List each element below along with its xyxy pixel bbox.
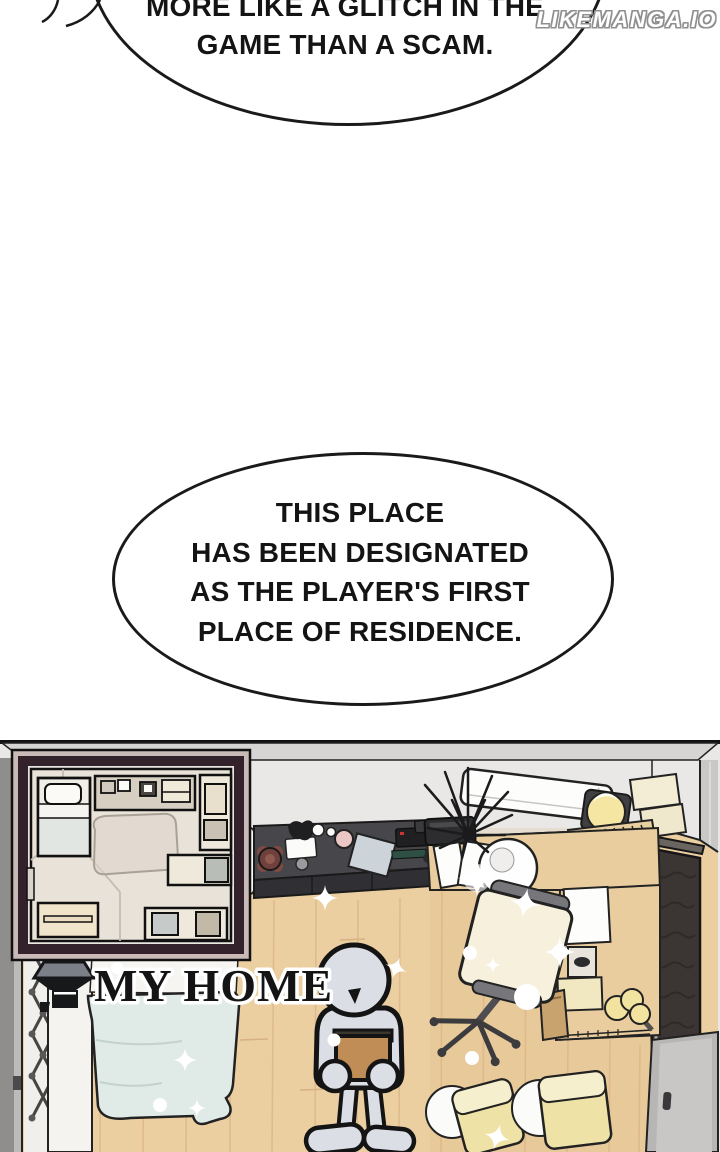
bubble-line: THIS PLACE	[112, 493, 608, 533]
home-label-text: MY HOME	[94, 960, 333, 1011]
bubble-line: PLACE OF RESIDENCE.	[112, 612, 608, 652]
book	[285, 837, 317, 860]
bubble-line: GAME THAN A SCAM.	[90, 26, 600, 64]
character-hand	[368, 1061, 398, 1091]
bubble-line: HAS BEEN DESIGNATED	[112, 533, 608, 573]
bubble-line: MORE LIKE A GLITCH IN THE	[90, 0, 600, 26]
site-watermark: LIKEMANGA.IO	[536, 7, 717, 33]
cushion	[538, 1070, 612, 1150]
character-foot	[363, 1126, 415, 1152]
speech-text-residence: THIS PLACE HAS BEEN DESIGNATED AS THE PL…	[112, 493, 608, 651]
pink-dish	[335, 830, 353, 848]
speech-text-top: MORE LIKE A GLITCH IN THE GAME THAN A SC…	[90, 0, 600, 64]
room-panel: MY HOME	[0, 740, 720, 1152]
door	[646, 1032, 718, 1152]
door-handle	[662, 1092, 671, 1111]
minimap	[12, 750, 250, 960]
minimap-rug	[94, 814, 178, 875]
sideboard-desk	[228, 819, 441, 898]
character-foot	[305, 1123, 365, 1152]
character-hand	[320, 1061, 350, 1091]
flower-pot	[257, 846, 283, 872]
comic-page: LIKEMANGA.IO MORE LIKE A GLITCH IN THE G…	[0, 0, 720, 1152]
bubble-line: AS THE PLAYER'S FIRST	[112, 572, 608, 612]
